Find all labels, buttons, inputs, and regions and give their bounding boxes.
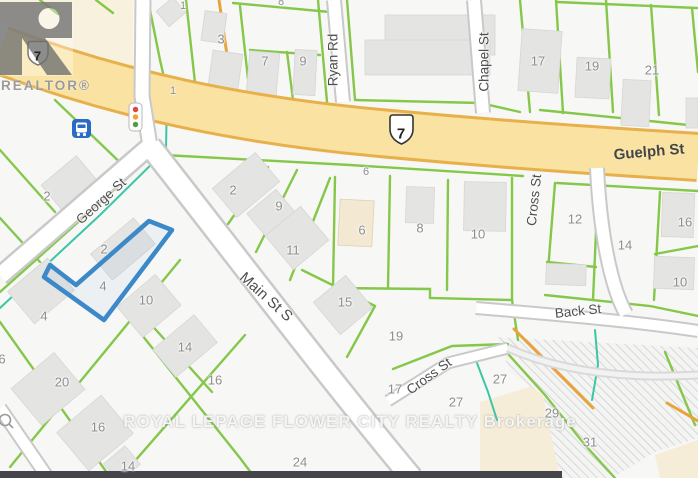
street-label-chapel: Chapel St xyxy=(477,32,492,91)
lot-number: 10 xyxy=(139,293,153,308)
lot-number: 24 xyxy=(293,455,307,470)
lot-number: 8 xyxy=(278,0,284,8)
traffic-light-icon xyxy=(129,103,142,131)
lot-number: 12 xyxy=(568,212,582,227)
lot-number: 14 xyxy=(121,459,135,474)
route-shield-number: 7 xyxy=(34,49,41,64)
lot-number: 2 xyxy=(229,183,236,198)
street-label-ryan: Ryan Rd xyxy=(326,34,341,87)
lot-number: 19 xyxy=(585,59,599,74)
lot-number: 16 xyxy=(91,420,105,435)
lot-number: 2 xyxy=(43,189,50,204)
lot-number: 27 xyxy=(493,372,507,387)
lot-number: 9 xyxy=(299,54,306,69)
lot-number: 6 xyxy=(363,166,369,178)
lot-number: 17 xyxy=(531,54,545,69)
lot-number: 31 xyxy=(583,435,597,450)
lot-number: 6 xyxy=(0,352,6,367)
bus-stop-icon xyxy=(72,119,91,138)
bottom-dark-band xyxy=(0,471,562,478)
lot-number: 10 xyxy=(471,227,485,242)
lot-number: 4 xyxy=(99,279,106,294)
lot-number: 19 xyxy=(389,329,403,344)
lot-number: 6 xyxy=(358,223,365,238)
lot-number: 27 xyxy=(449,395,463,410)
lot-number: 16 xyxy=(208,373,222,388)
lot-number: 16 xyxy=(678,215,692,230)
lot-number: 15 xyxy=(338,295,352,310)
lot-number: 4 xyxy=(40,309,47,324)
lot-number: 2 xyxy=(100,242,107,257)
realtor-watermark-text: REALTOR® xyxy=(1,78,91,93)
lot-number: 1 xyxy=(180,0,186,12)
realtor-r-logo-icon xyxy=(0,2,73,76)
lot-number: 3 xyxy=(217,32,224,47)
lot-number: 14 xyxy=(178,340,192,355)
lot-number: 11 xyxy=(286,243,300,258)
lot-number: 20 xyxy=(55,375,69,390)
address-marker: 1 xyxy=(170,85,176,97)
lot-number: 10 xyxy=(673,275,687,290)
route-shield-number: 7 xyxy=(397,126,405,143)
brokerage-watermark-text: ROYAL LEPAGE FLOWER CITY REALTY Brokerag… xyxy=(123,412,576,432)
lot-number: 21 xyxy=(645,63,659,78)
lot-number: 7 xyxy=(261,54,268,69)
lot-number: 14 xyxy=(618,238,632,253)
lot-number: 9 xyxy=(275,199,282,214)
map-canvas[interactable]: Guelph St George St Main St S Ryan Rd Ch… xyxy=(0,0,698,478)
lot-number: 8 xyxy=(416,221,423,236)
lot-number: 17 xyxy=(388,382,402,397)
poi-building xyxy=(338,199,374,247)
